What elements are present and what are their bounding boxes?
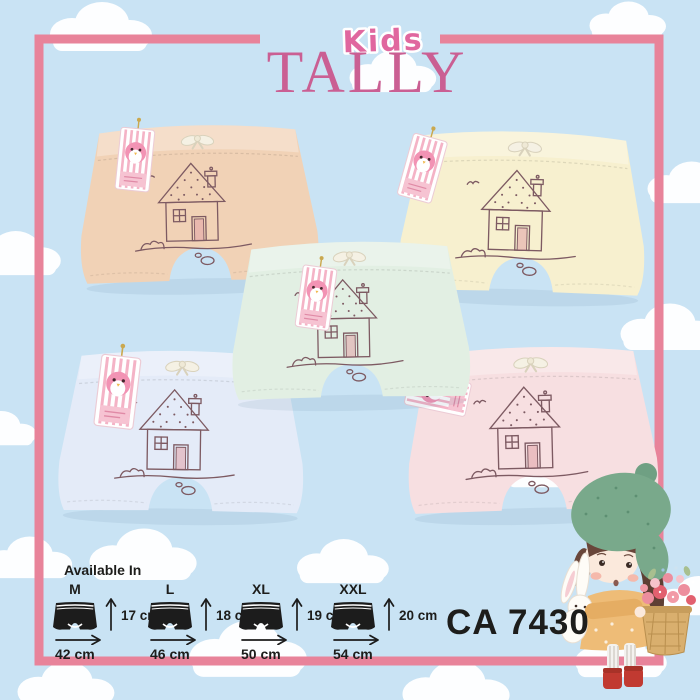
product-banner: Kids TALLY Available In M 17 cm 42 cm L: [0, 0, 700, 700]
logo-brand-text: TALLY: [267, 39, 468, 105]
scene-graphic: Kids TALLY: [0, 0, 700, 700]
